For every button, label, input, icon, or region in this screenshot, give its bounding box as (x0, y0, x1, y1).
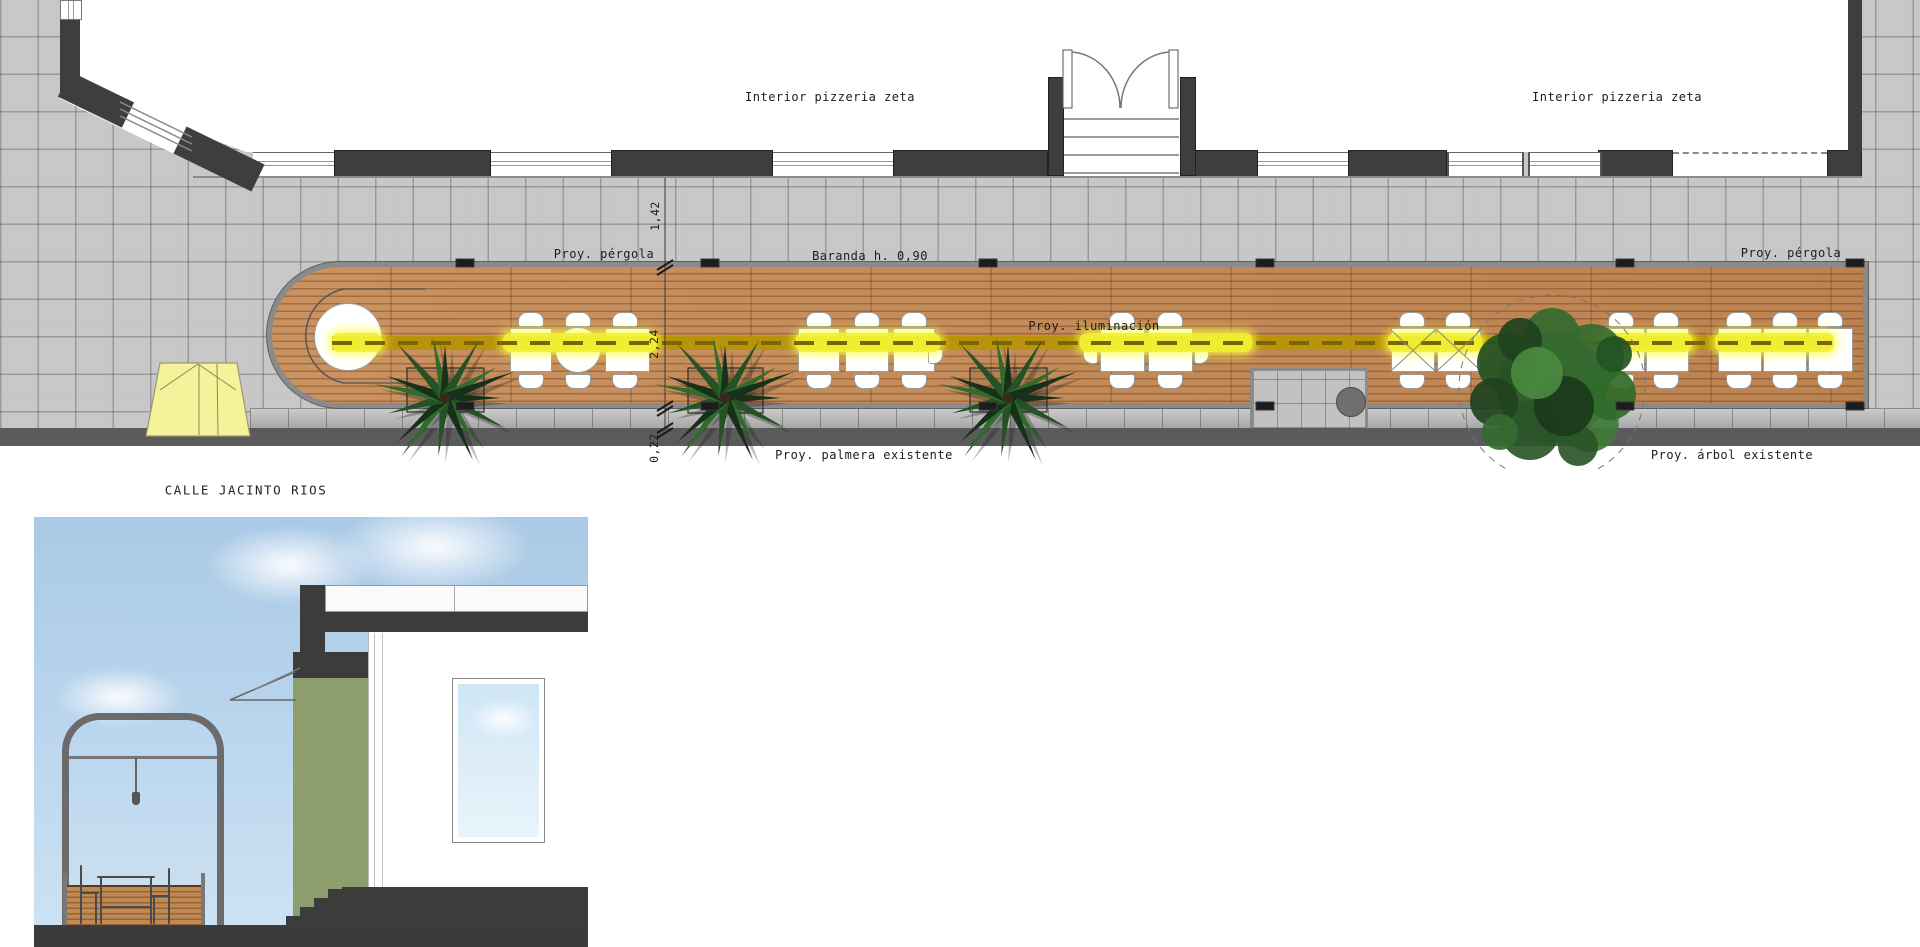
palm-tree-icon (655, 337, 802, 465)
section-steps (286, 887, 588, 925)
pergola-post-marker (1256, 259, 1274, 267)
pergola-post-marker (701, 259, 719, 267)
pergola-post-marker (1846, 259, 1864, 267)
label-calle: CALLE JACINTO RIOS (165, 483, 327, 498)
label-palmera: Proy. palmera existente (775, 448, 953, 462)
pergola-post-marker (456, 259, 474, 267)
dim-1-42: 1,42 (648, 201, 662, 231)
architectural-drawing: Interior pizzeria zeta Interior pizzeria… (0, 0, 1920, 947)
plan-vector-overlay (0, 0, 1920, 470)
palm-tree-icon (375, 337, 522, 465)
pergola-post-marker (701, 402, 719, 410)
pergola-post-marker (1616, 259, 1634, 267)
label-pergola-left: Proy. pérgola (554, 247, 654, 261)
existing-tree-icon (1470, 308, 1636, 466)
pergola-post-marker (1256, 402, 1274, 410)
section-vector-overlay (34, 517, 588, 947)
pergola-post-marker (979, 259, 997, 267)
palm-tree-icon (938, 337, 1085, 465)
dim-0-22: 0,22 (647, 433, 661, 463)
label-pergola-right: Proy. pérgola (1741, 246, 1841, 260)
label-interior-right: Interior pizzeria zeta (1532, 90, 1702, 104)
pergola-post-marker (1846, 402, 1864, 410)
pergola-post-marker (1616, 402, 1634, 410)
label-baranda: Baranda h. 0,90 (812, 249, 928, 263)
section-furniture (81, 866, 169, 923)
label-interior-left: Interior pizzeria zeta (745, 90, 915, 104)
label-iluminacion: Proy. iluminación (1028, 319, 1159, 333)
label-arbol: Proy. árbol existente (1651, 448, 1813, 462)
tent (146, 363, 250, 436)
section-drawing (34, 517, 588, 947)
pergola-post-marker (456, 402, 474, 410)
dim-2-24: 2,24 (647, 329, 661, 359)
section-ground (34, 925, 588, 947)
pergola-post-marker (979, 402, 997, 410)
